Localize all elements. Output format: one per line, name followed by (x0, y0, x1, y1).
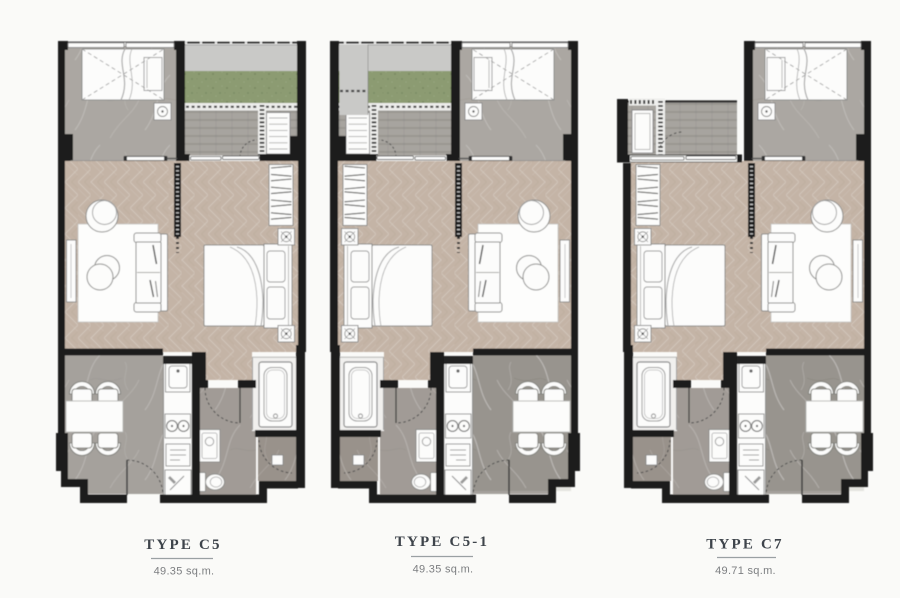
svg-text:49.35 sq.m.: 49.35 sq.m. (413, 564, 474, 576)
svg-text:TYPE C7: TYPE C7 (706, 537, 784, 553)
svg-text:TYPE C5: TYPE C5 (144, 537, 222, 553)
svg-text:49.71 sq.m.: 49.71 sq.m. (715, 565, 776, 577)
svg-text:49.35 sq.m.: 49.35 sq.m. (154, 566, 215, 578)
svg-text:TYPE C5-1: TYPE C5-1 (395, 534, 489, 550)
